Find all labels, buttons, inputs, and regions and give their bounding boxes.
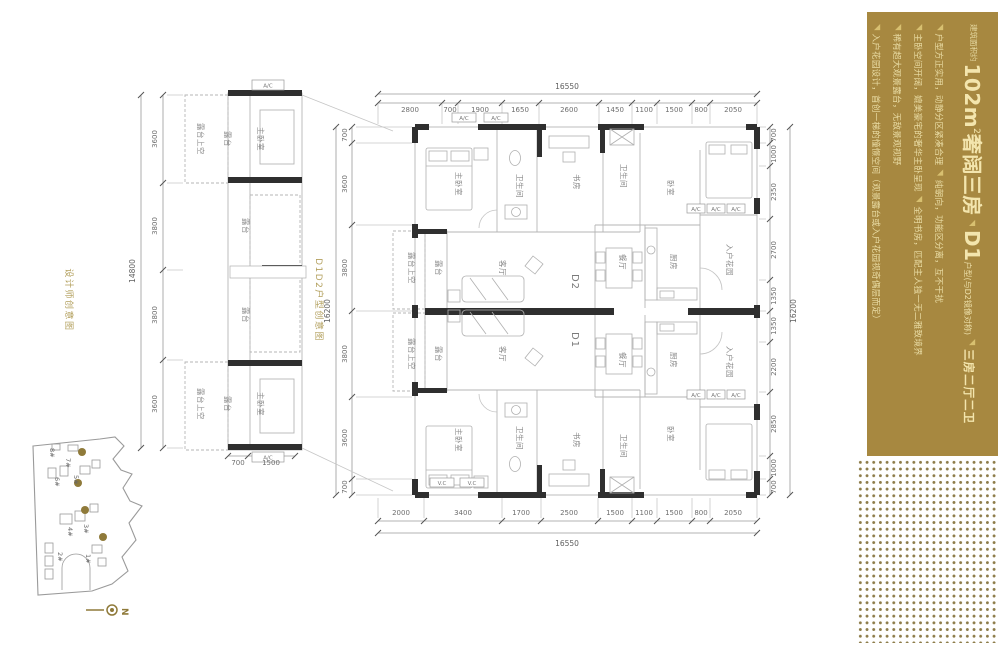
panel-intro: 建筑面积约 [969, 24, 978, 62]
bullet-text: 全明书房，匹配主人独一无二雅致境界 [912, 206, 922, 356]
main-floorplan: A/C A/C A/C A/C A/C A/C A/C A/C V.C V.C … [393, 113, 760, 498]
service-boxes: A/C A/C A/C A/C A/C A/C A/C A/C V.C V.C [430, 113, 745, 487]
dim-bot-total: 16550 [555, 539, 579, 548]
dims-right: 700 1000 2350 2700 1350 1350 2200 2850 1… [770, 128, 798, 493]
room-label-entry-garden-d1: 入户花园 [725, 346, 735, 378]
dim-top-6: 1100 [635, 106, 653, 114]
room-labels-d1: 主卧室 卫生间 书房 卫生间 卧室 餐厅 厨房 入户花园 客厅 露台 露台上空 [407, 338, 735, 458]
north-label: N [119, 608, 129, 616]
dim-bot-6: 1500 [665, 509, 683, 517]
site-building-4: 4# [66, 527, 74, 537]
room-label-balcony-d2: 露台 [434, 260, 444, 276]
triangle-mark-icon: ◥ [936, 169, 945, 175]
ac-label: A/C [711, 393, 721, 399]
room-labels-d2: 主卧室 卫生间 书房 卫生间 卧室 餐厅 厨房 入户花园 客厅 露台 露台上空 [407, 164, 735, 284]
bullet-text: 纯朝向，功能区分离，互不干扰 [933, 180, 943, 303]
ac-label: A/C [731, 393, 741, 399]
triangle-mark-icon: ◥ [894, 24, 903, 30]
site-building-8: 8# [48, 448, 56, 458]
dim-right-3: 2700 [770, 241, 778, 259]
room-label-study-d2: 书房 [572, 174, 582, 190]
panel-unit-note: 户型(与D2镜像对称) [963, 262, 972, 336]
site-boundary [33, 437, 142, 595]
structural-walls [412, 124, 760, 498]
site-building-1: 1# [84, 554, 92, 564]
dim-top-9: 2050 [724, 106, 742, 114]
dim-right-6: 2200 [770, 358, 778, 376]
ac-label: A/C [491, 116, 501, 122]
unit-label-d1: D1 [569, 332, 580, 348]
site-building-3: 3# [82, 524, 90, 534]
dim-left-1: 3600 [341, 175, 349, 193]
panel-layout: 三房二厅二卫 [962, 349, 976, 424]
room-label-bathroom2-d2: 卫生间 [619, 164, 629, 188]
site-plan: 1# 2# 3# 4# 5# 6# 7# 8# N [33, 437, 142, 616]
panel-bullet-4: ◥入户花园设计，首创一梯的憧憬空间（观景露台或入户花园视奇偶层而定） [870, 24, 882, 444]
room-label-bedroom-d2: 卧室 [666, 180, 676, 196]
ac-label: A/C [263, 84, 273, 90]
dim-schem-b0: 700 [231, 459, 244, 467]
triangle-mark-icon: ◥ [915, 196, 924, 202]
dim-bot-7: 800 [694, 509, 707, 517]
drawing-canvas: 16550 2800 700 1900 1650 2600 1450 1100 … [0, 0, 1000, 652]
floorplan-sheet: 16550 2800 700 1900 1650 2600 1450 1100 … [0, 0, 1000, 652]
dim-bot-1: 3400 [454, 509, 472, 517]
room-label-kitchen-d1: 厨房 [669, 352, 679, 368]
dim-bot-3: 2500 [560, 509, 578, 517]
dim-bot-0: 2000 [392, 509, 410, 517]
room-label-entry-garden-d2: 入户花园 [725, 244, 735, 276]
dim-left-5: 700 [341, 480, 349, 493]
vc-label: V.C [438, 481, 447, 487]
dim-bot-8: 2050 [724, 509, 742, 517]
dim-schem-b1: 1500 [262, 459, 280, 467]
dim-left-total: 16200 [323, 299, 332, 323]
schematic-master-top: 主卧室 [256, 127, 266, 151]
bullet-text: 入户花园设计，首创一梯的憧憬空间（观景露台或入户花园视奇偶层而定） [870, 33, 880, 323]
info-panel-content: 建筑面积约102m2奢阔三房◥D1户型(与D2镜像对称)◥三房二厅二卫 ◥户型方… [867, 12, 998, 456]
panel-area: 102m [960, 64, 984, 129]
north-indicator: N [86, 605, 129, 616]
room-label-balcony-void-d1: 露台上空 [407, 338, 417, 370]
dim-top-3: 1650 [511, 106, 529, 114]
dim-top-7: 1500 [665, 106, 683, 114]
dim-right-4: 1350 [770, 287, 778, 305]
dim-left-4: 3600 [341, 429, 349, 447]
room-label-bathroom1-d2: 卫生间 [515, 174, 525, 198]
dims-bottom: 2000 3400 1700 2500 1500 1100 1500 800 2… [392, 509, 742, 548]
schematic-balcony-void-bottom: 露台上空 [196, 388, 206, 420]
dim-bot-2: 1700 [512, 509, 530, 517]
room-label-master-bedroom-d2: 主卧室 [454, 172, 464, 196]
panel-title: 建筑面积约102m2奢阔三房◥D1户型(与D2镜像对称)◥三房二厅二卫 [954, 24, 989, 444]
panel-bullet-2: ◥主卧空间开阔，媲美豪宅的奢华主卧呈现◥全明书房，匹配主人独一无二雅致境界 [912, 24, 924, 444]
bullet-text: 户型方正实用，动静分区紧凑合理 [933, 33, 943, 165]
ac-label: A/C [731, 207, 741, 213]
dim-right-total: 16200 [789, 299, 798, 323]
triangle-mark-icon: ◥ [968, 339, 977, 345]
dim-schem-1: 3800 [151, 217, 159, 235]
bullet-text: 主卧空间开阔，媲美豪宅的奢华主卧呈现 [912, 33, 922, 191]
dim-top-total: 16550 [555, 82, 579, 91]
dim-right-9: 700 [770, 480, 778, 493]
dim-bot-5: 1100 [635, 509, 653, 517]
panel-bullet-3: ◥稀有超大观景露台，无敌景观视野 [891, 24, 903, 444]
site-building-2: 2# [56, 552, 64, 562]
dim-right-7: 2850 [770, 415, 778, 433]
info-panel: 建筑面积约102m2奢阔三房◥D1户型(与D2镜像对称)◥三房二厅二卫 ◥户型方… [867, 12, 998, 456]
room-label-balcony-void-d2: 露台上空 [407, 252, 417, 284]
dim-schem-total: 14800 [128, 259, 137, 283]
section-break [230, 266, 306, 278]
schematic-master-bottom: 主卧室 [256, 392, 266, 416]
room-label-dining-d1: 餐厅 [618, 352, 627, 368]
schematic-balcony-mid-2: 露台 [241, 307, 251, 323]
dim-bot-4: 1500 [606, 509, 624, 517]
dim-top-4: 2600 [560, 106, 578, 114]
site-building-6: 6# [53, 477, 61, 487]
room-label-bedroom-d1: 卧室 [666, 426, 676, 442]
room-label-dining-d2: 餐厅 [618, 254, 627, 270]
dim-left-0: 700 [341, 128, 349, 141]
panel-unit-code: D1 [960, 230, 984, 262]
vc-label: V.C [468, 481, 477, 487]
room-label-kitchen-d2: 厨房 [669, 254, 679, 270]
panel-headline: 奢阔三房 [960, 134, 984, 216]
ac-label: A/C [711, 207, 721, 213]
ac-label: A/C [459, 116, 469, 122]
dim-schem-0: 3600 [151, 130, 159, 148]
triangle-mark-icon: ◥ [915, 24, 924, 30]
dim-schem-3: 3600 [151, 395, 159, 413]
room-label-living-d1: 客厅 [498, 346, 508, 362]
dims-top: 16550 2800 700 1900 1650 2600 1450 1100 … [401, 82, 742, 114]
triangle-mark-icon: ◥ [936, 24, 945, 30]
dim-right-2: 2350 [770, 183, 778, 201]
room-label-bathroom1-d1: 卫生间 [515, 426, 525, 450]
dim-right-8: 1000 [770, 459, 778, 477]
panel-bullet-1: ◥户型方正实用，动静分区紧凑合理◥纯朝向，功能区分离，互不干扰 [933, 24, 945, 444]
dim-top-8: 800 [694, 106, 707, 114]
site-buildings [45, 444, 106, 590]
ac-label: A/C [691, 393, 701, 399]
halftone-pattern [857, 459, 998, 643]
dim-left-3: 3800 [341, 345, 349, 363]
dim-right-0: 700 [770, 128, 778, 141]
dim-right-5: 1350 [770, 317, 778, 335]
dim-top-0: 2800 [401, 106, 419, 114]
room-label-living-d2: 客厅 [498, 260, 508, 276]
unit-label-d2: D2 [569, 274, 580, 290]
bullet-text: 稀有超大观景露台，无敌景观视野 [891, 33, 901, 165]
schematic-balcony-bottom: 露台 [223, 396, 233, 412]
site-building-7: 7# [64, 458, 72, 468]
triangle-mark-icon: ◥ [968, 220, 977, 226]
triangle-mark-icon: ◥ [873, 24, 882, 30]
dim-left-2: 3800 [341, 259, 349, 277]
dim-right-1: 1000 [770, 145, 778, 163]
schematic-balcony-mid-1: 露台 [241, 218, 251, 234]
dim-top-5: 1450 [606, 106, 624, 114]
dim-schem-2: 3800 [151, 306, 159, 324]
room-label-bathroom2-d1: 卫生间 [619, 434, 629, 458]
caption-designer: 设计师创意图 [63, 268, 75, 331]
schematic-balcony-void-top: 露台上空 [196, 123, 206, 155]
site-building-5: 5# [72, 475, 80, 485]
ac-label: A/C [691, 207, 701, 213]
room-label-balcony-d1: 露台 [434, 346, 444, 362]
caption-schematic: D1D2户型创意图 [313, 258, 325, 342]
schematic-balcony-top: 露台 [223, 131, 233, 147]
room-label-master-bedroom-d1: 主卧室 [454, 428, 464, 452]
room-label-study-d1: 书房 [572, 432, 582, 448]
